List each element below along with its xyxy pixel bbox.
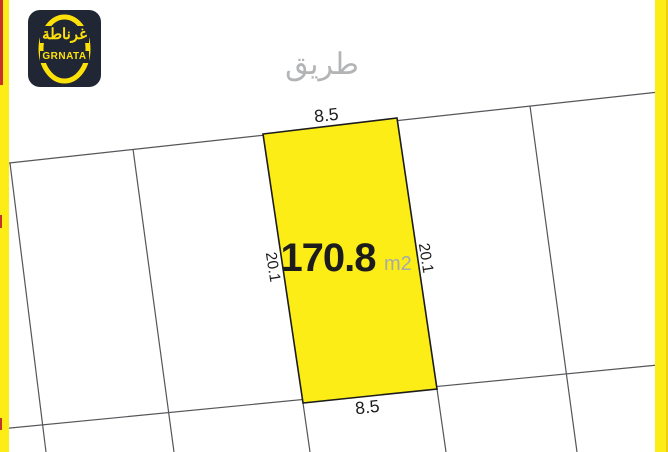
plot-map-image: طريق 8.5 8.5 20.1 20.1 170.8 m2 غرناطة G… bbox=[0, 0, 668, 452]
parcel-divider-line bbox=[437, 389, 446, 452]
plot-top-width-label: 8.5 bbox=[313, 104, 339, 127]
logo-latin-text: GRNATA bbox=[28, 51, 101, 63]
grnata-logo: غرناطة GRNATA bbox=[28, 10, 101, 87]
logo-ellipse-icon bbox=[28, 10, 101, 87]
left-edge-red-accent bbox=[0, 215, 2, 228]
road-label: طريق bbox=[285, 48, 359, 82]
parcel-divider-line bbox=[133, 149, 174, 452]
logo-arabic-label: غرناطة bbox=[40, 26, 89, 43]
parcel-divider-line bbox=[303, 403, 310, 452]
plot-area-value: 170.8 bbox=[280, 236, 376, 280]
parcel-divider-line bbox=[10, 163, 46, 452]
logo-latin-label: GRNATA bbox=[40, 51, 88, 63]
plot-area-unit: m2 bbox=[384, 253, 412, 275]
left-edge-red-accent bbox=[0, 0, 3, 85]
parcel-divider-line bbox=[530, 106, 577, 452]
logo-arabic-text: غرناطة bbox=[28, 26, 101, 43]
right-edge-strip bbox=[655, 0, 668, 452]
plot-bottom-width-label: 8.5 bbox=[354, 396, 380, 419]
left-edge-red-accent bbox=[0, 418, 2, 430]
